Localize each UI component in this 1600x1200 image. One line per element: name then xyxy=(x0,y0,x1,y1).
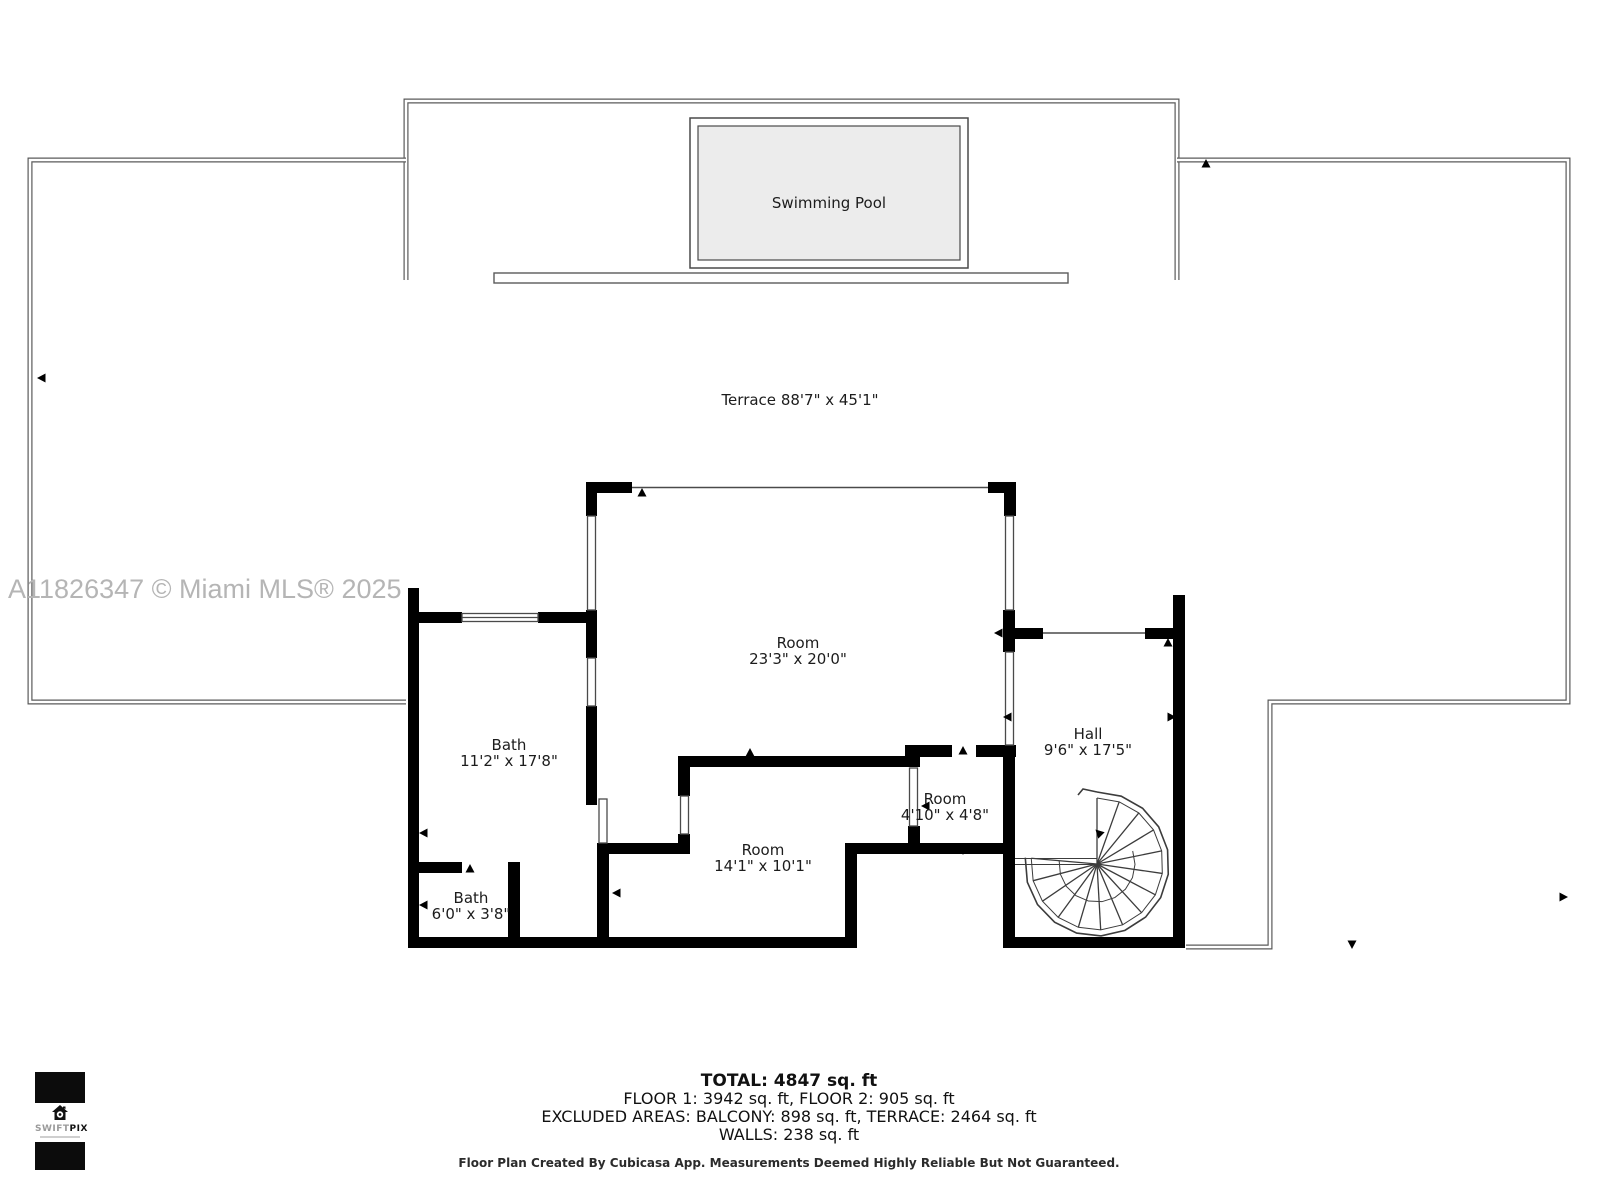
total-area: TOTAL: 4847 sq. ft xyxy=(0,1072,1578,1090)
logo-brand-text: SWIFTPIX xyxy=(35,1125,85,1134)
spiral-staircase xyxy=(1015,789,1168,936)
room-label: Room14'1" x 10'1" xyxy=(714,842,812,874)
mls-watermark: A11826347 © Miami MLS® 2025 xyxy=(8,574,402,605)
room-label: Hall9'6" x 17'5" xyxy=(1044,726,1132,758)
terrace-label: Terrace 88'7" x 45'1" xyxy=(721,392,878,408)
walls xyxy=(408,482,1185,948)
excluded-areas: EXCLUDED AREAS: BALCONY: 898 sq. ft, TER… xyxy=(0,1108,1578,1126)
window-room-right-lower xyxy=(1006,652,1014,745)
pool-label: Swimming Pool xyxy=(772,194,886,212)
window-room-right-upper xyxy=(1006,516,1014,610)
window-room-left-upper xyxy=(588,516,596,610)
terrace-edge-strip xyxy=(494,273,1068,283)
swiftpix-logo: SWIFTPIX xyxy=(35,1072,85,1170)
room-label: Bath6'0" x 3'8" xyxy=(432,890,511,922)
house-icon xyxy=(51,1104,69,1121)
door-leaf-bath xyxy=(599,799,607,843)
room-label: Bath11'2" x 17'8" xyxy=(460,737,558,769)
disclaimer-text: Floor Plan Created By Cubicasa App. Meas… xyxy=(0,1156,1578,1170)
area-summary: TOTAL: 4847 sq. ft FLOOR 1: 3942 sq. ft,… xyxy=(0,1072,1578,1144)
logo-tagline-rule xyxy=(40,1136,80,1138)
logo-top-block xyxy=(35,1072,85,1103)
floor-areas: FLOOR 1: 3942 sq. ft, FLOOR 2: 905 sq. f… xyxy=(0,1090,1578,1108)
terrace-name: Terrace xyxy=(721,391,776,409)
opening-room-bath xyxy=(588,658,596,706)
logo-bottom-block xyxy=(35,1142,85,1170)
room-label: Room4'10" x 4'8" xyxy=(901,791,989,823)
opening-lines xyxy=(632,488,1145,634)
terrace-dims: 88'7" x 45'1" xyxy=(781,391,879,409)
room-label: Room23'3" x 20'0" xyxy=(749,635,847,667)
walls-area: WALLS: 238 sq. ft xyxy=(0,1126,1578,1144)
swimming-pool xyxy=(690,118,968,268)
pool-water-rect xyxy=(698,126,960,260)
floor-plan-canvas: Swimming Pool Terrace 88'7" x 45'1" Room… xyxy=(0,0,1600,1200)
window-room-center xyxy=(681,796,689,834)
